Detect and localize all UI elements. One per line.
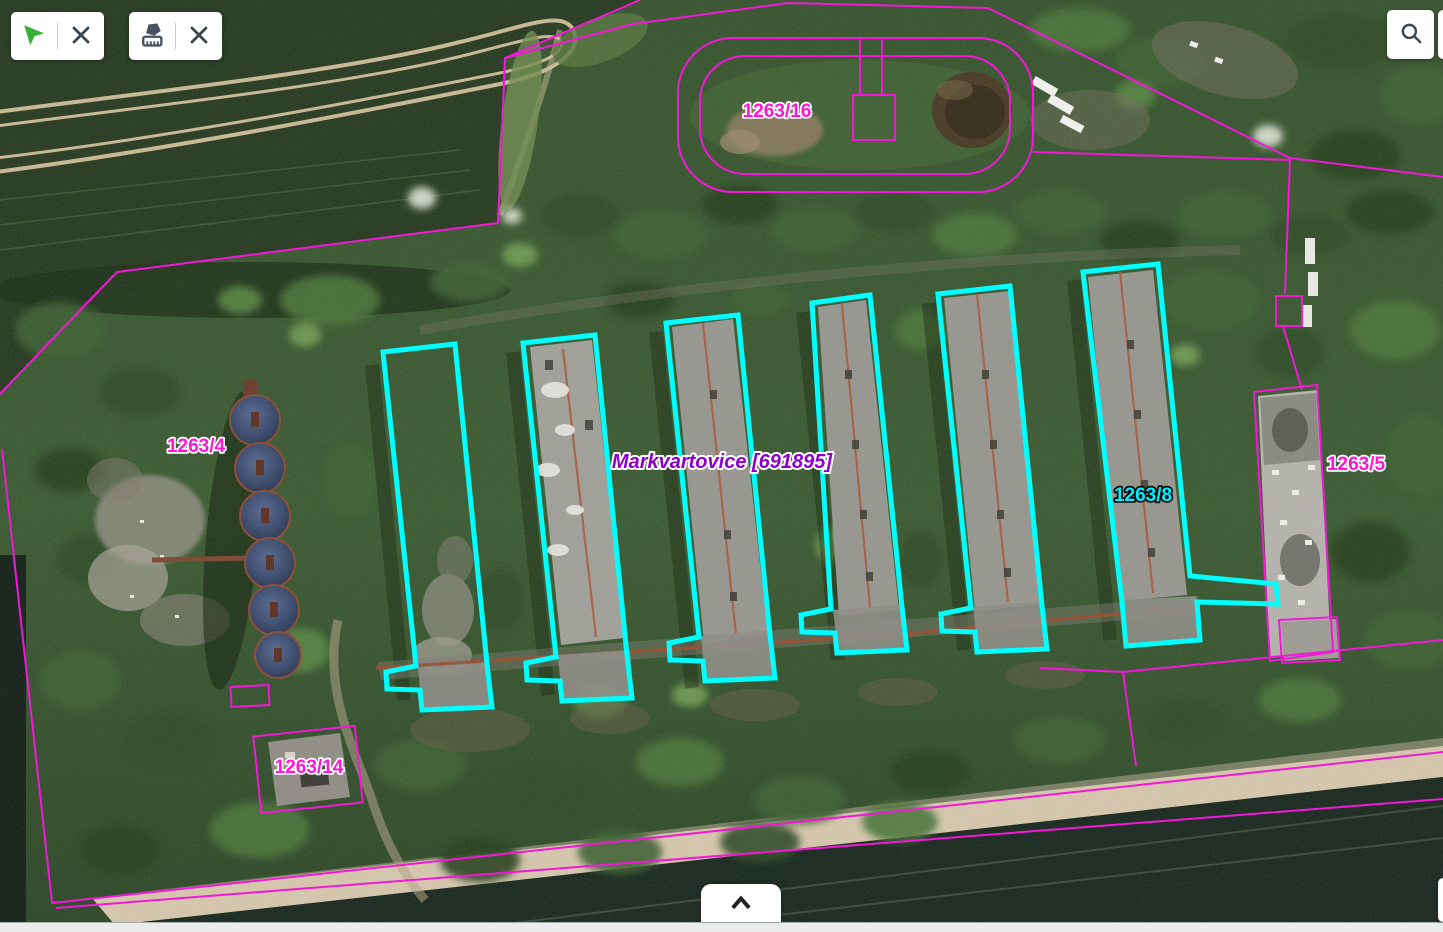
parcel-label-1263-16: 1263/16	[743, 101, 812, 122]
close-icon	[187, 23, 211, 50]
cursor-icon	[21, 22, 47, 51]
close-icon	[69, 23, 93, 50]
search-button[interactable]	[1387, 11, 1434, 59]
measure-toolbar	[129, 12, 222, 60]
map-canvas[interactable]: 1263/16 1263/4 1263/8 1263/5 1263/14 Mar…	[0, 0, 1443, 932]
clipped-corner-button[interactable]	[1438, 878, 1443, 922]
parcel-label-1263-14: 1263/14	[275, 757, 344, 778]
clipped-toolbar-button[interactable]	[1438, 10, 1443, 59]
selection-toolbar	[11, 12, 104, 60]
parcel-label-1263-8: 1263/8	[1114, 485, 1172, 506]
close-measure-tool-button[interactable]	[176, 12, 222, 60]
chevron-up-icon	[727, 891, 755, 916]
parcel-label-1263-5: 1263/5	[1327, 454, 1386, 475]
expand-panel-button[interactable]	[701, 884, 781, 922]
measure-area-icon	[138, 21, 166, 52]
municipality-label: Markvartovice [691895]	[612, 451, 833, 473]
search-toolbar	[1387, 10, 1434, 59]
measure-area-tool-button[interactable]	[129, 12, 175, 60]
collapsed-bottom-panel	[0, 922, 1443, 932]
select-tool-button[interactable]	[11, 12, 57, 60]
map-viewer: 1263/16 1263/4 1263/8 1263/5 1263/14 Mar…	[0, 0, 1443, 932]
search-icon	[1398, 20, 1424, 49]
close-selection-tool-button[interactable]	[58, 12, 104, 60]
parcel-label-1263-4: 1263/4	[167, 436, 226, 457]
